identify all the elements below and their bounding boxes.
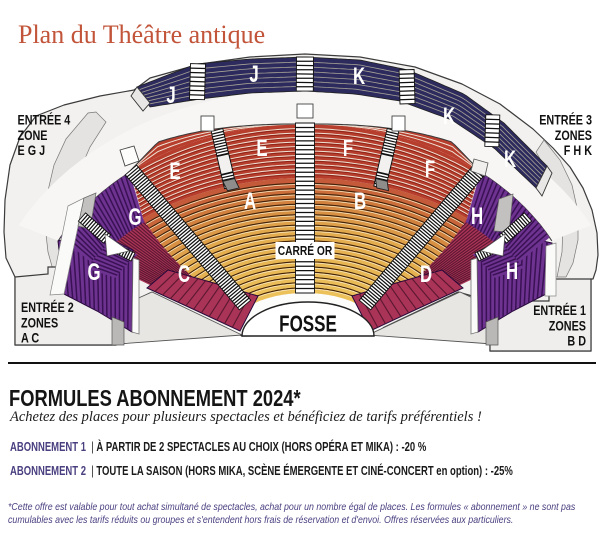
svg-text:ZONES: ZONES <box>549 318 586 333</box>
svg-text:ZONES: ZONES <box>555 128 592 143</box>
svg-text:ZONE: ZONE <box>18 128 48 143</box>
svg-text:C: C <box>178 261 190 288</box>
svg-text:ENTRÉE 4: ENTRÉE 4 <box>18 111 71 128</box>
svg-text:E G J: E G J <box>18 143 46 158</box>
svg-text:K: K <box>353 63 365 90</box>
svg-text:B: B <box>354 188 366 215</box>
svg-text:G: G <box>87 259 100 286</box>
svg-text:A: A <box>244 188 256 215</box>
svg-text:CARRÉ OR: CARRÉ OR <box>278 244 333 258</box>
svg-text:ENTRÉE 3: ENTRÉE 3 <box>539 111 592 128</box>
svg-text:J: J <box>166 82 175 109</box>
svg-text:A C: A C <box>21 330 39 345</box>
svg-text:H: H <box>506 258 518 285</box>
svg-text:ENTRÉE 2: ENTRÉE 2 <box>21 299 74 316</box>
svg-text:F: F <box>425 156 435 183</box>
svg-text:F H K: F H K <box>564 143 592 158</box>
svg-text:D: D <box>420 261 432 288</box>
svg-text:K: K <box>443 103 455 130</box>
svg-text:FOSSE: FOSSE <box>279 312 337 337</box>
svg-text:B D: B D <box>567 333 586 348</box>
svg-text:G: G <box>128 204 141 231</box>
svg-text:ZONES: ZONES <box>21 315 58 330</box>
svg-text:E: E <box>256 135 267 162</box>
svg-text:E: E <box>169 158 180 185</box>
svg-text:ENTRÉE 1: ENTRÉE 1 <box>533 302 586 319</box>
svg-text:F: F <box>343 135 353 162</box>
svg-text:K: K <box>504 146 516 173</box>
svg-text:H: H <box>471 203 483 230</box>
svg-text:J: J <box>249 61 258 88</box>
